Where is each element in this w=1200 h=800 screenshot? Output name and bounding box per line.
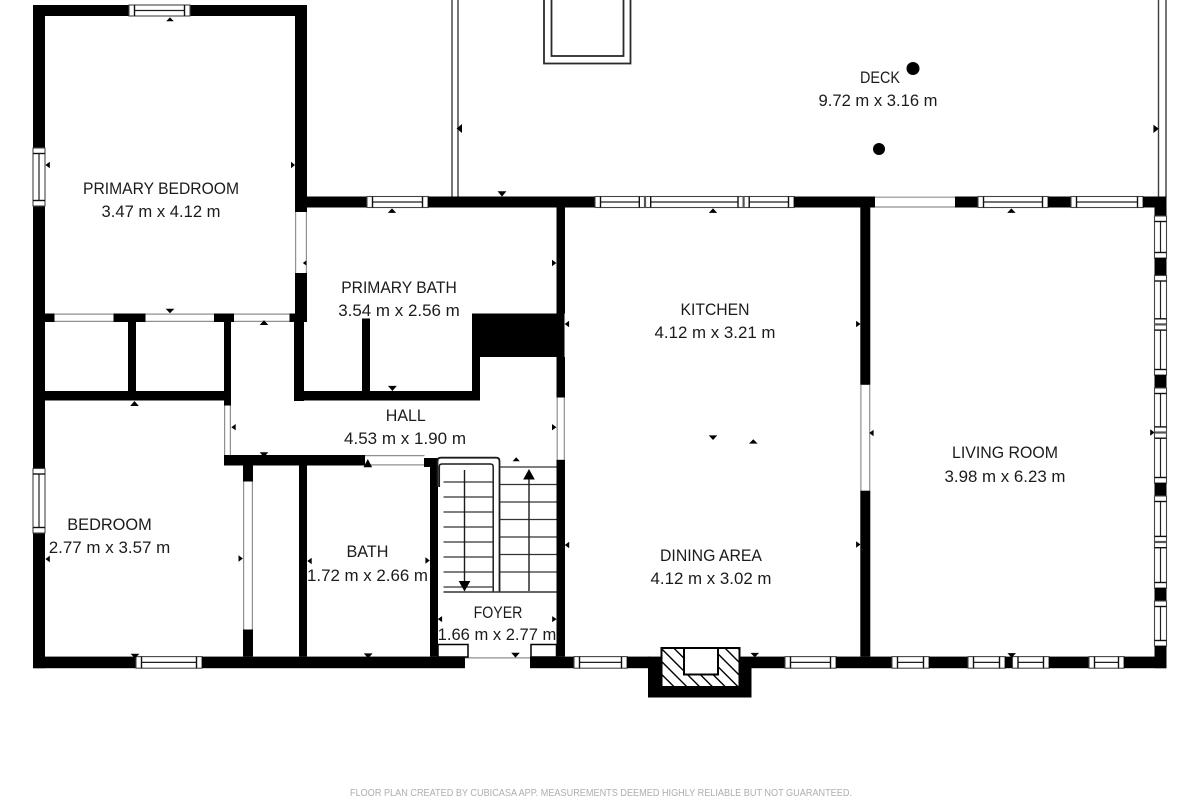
svg-text:BATH: BATH	[347, 542, 389, 561]
svg-text:DECK: DECK	[860, 68, 901, 87]
svg-text:4.12 m x 3.21 m: 4.12 m x 3.21 m	[655, 324, 776, 342]
svg-text:KITCHEN: KITCHEN	[681, 300, 750, 319]
svg-text:4.12 m x 3.02 m: 4.12 m x 3.02 m	[651, 570, 772, 588]
svg-text:FOYER: FOYER	[474, 603, 523, 622]
svg-text:9.72 m x 3.16 m: 9.72 m x 3.16 m	[819, 92, 938, 110]
svg-text:FLOOR PLAN CREATED BY CUBICASA: FLOOR PLAN CREATED BY CUBICASA APP. MEAS…	[350, 788, 852, 799]
svg-text:1.66 m x 2.77 m: 1.66 m x 2.77 m	[438, 626, 557, 644]
svg-text:3.54 m x 2.56 m: 3.54 m x 2.56 m	[338, 302, 460, 320]
svg-text:2.77 m x 3.57 m: 2.77 m x 3.57 m	[49, 539, 171, 557]
svg-text:PRIMARY BEDROOM: PRIMARY BEDROOM	[83, 179, 239, 198]
svg-text:DINING AREA: DINING AREA	[660, 546, 763, 565]
svg-text:BEDROOM: BEDROOM	[67, 515, 152, 534]
svg-text:4.53 m x 1.90 m: 4.53 m x 1.90 m	[344, 430, 466, 448]
svg-text:3.98 m x 6.23 m: 3.98 m x 6.23 m	[945, 468, 1066, 486]
svg-text:PRIMARY BATH: PRIMARY BATH	[341, 278, 457, 297]
svg-text:3.47 m x 4.12 m: 3.47 m x 4.12 m	[102, 203, 221, 221]
svg-text:HALL: HALL	[386, 406, 426, 425]
svg-text:1.72 m x 2.66 m: 1.72 m x 2.66 m	[307, 567, 428, 585]
svg-text:LIVING ROOM: LIVING ROOM	[952, 443, 1058, 462]
